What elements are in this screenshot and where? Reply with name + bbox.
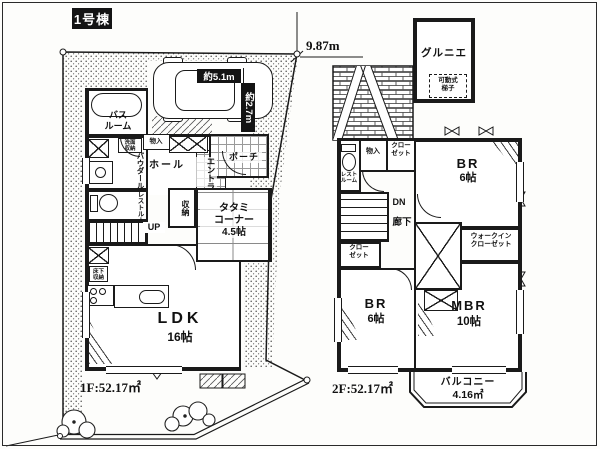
ladder-box: 可動式 梯子 — [429, 74, 467, 98]
ldk-label: LDK — [140, 310, 220, 329]
window — [82, 292, 90, 338]
restroom-1f-label: レストルーム — [126, 191, 144, 218]
small-x-box — [424, 290, 458, 311]
floor2-area-label: 2F:52.17㎡ — [332, 381, 442, 396]
stairs-down-label: DN — [388, 197, 410, 208]
washbasin — [88, 161, 113, 184]
storage-2f-label: 物入 — [360, 148, 386, 156]
bathroom-label: バス ルーム — [95, 110, 141, 131]
floor1-area-label: 1F:52.17㎡ — [80, 380, 190, 395]
tatami-label: タタミ コーナー 4.5帖 — [200, 203, 268, 238]
floorplan-page: 1号棟 9.87m 約5.1m 約2.7m バス ルーム 洗面 収納 パウダール… — [0, 0, 600, 449]
entrance-label: エントランス — [189, 157, 217, 187]
stairs-up-label: UP — [143, 222, 165, 233]
window — [348, 366, 398, 374]
ladder-label: 可動式 梯子 — [430, 77, 466, 92]
car-depth-dimension: 約2.7m — [241, 83, 255, 132]
kitchen-counter — [114, 285, 169, 308]
closet-mid-label: クロー ゼット — [339, 244, 379, 259]
bedroom-top-size: 6帖 — [438, 172, 498, 185]
stairs-1f — [85, 221, 148, 244]
washbasin-bowl — [95, 167, 106, 178]
hall-storage-label: 物入 — [144, 138, 168, 146]
master-bedroom-size: 10帖 — [439, 316, 499, 330]
powder-closet — [88, 139, 109, 158]
storage-1f-label: 収納 — [174, 194, 190, 222]
shoe-closet-cell — [188, 137, 206, 151]
void-x-box — [414, 222, 462, 290]
burner — [99, 288, 106, 295]
kitchen-sink — [139, 290, 165, 304]
site-width-dimension: 9.87m — [306, 38, 362, 53]
hall-storage-box: 物入 — [143, 134, 170, 150]
powder-room-label: パウダールーム — [127, 152, 145, 188]
bedroom-top-label: BR — [438, 156, 498, 171]
closet-top-label: クロー ゼット — [387, 142, 415, 157]
stairs-2f — [337, 192, 389, 242]
window — [106, 366, 182, 374]
hall-label: ホール — [146, 160, 188, 172]
walkin-closet-label: ウォークイン クローゼット — [461, 233, 521, 249]
window — [516, 290, 524, 334]
toilet-bowl-2f — [342, 153, 356, 171]
burner — [90, 288, 97, 295]
toilet-tank-1f — [90, 195, 98, 212]
balcony-door-window — [452, 366, 506, 374]
ldk-closet — [88, 247, 109, 264]
window — [334, 298, 342, 342]
building-title: 1号棟 — [74, 9, 110, 28]
window — [516, 162, 524, 202]
shoe-closet — [169, 136, 208, 153]
underfloor-storage-label: 床下 収納 — [90, 269, 107, 281]
building-title-badge: 1号棟 — [72, 8, 112, 29]
hallway-label: 廊下 — [389, 217, 415, 228]
bedroom-bottom-label: BR — [346, 296, 406, 311]
underfloor-storage-box: 床下 収納 — [89, 266, 108, 282]
kitchen-stove — [87, 285, 114, 306]
burner — [90, 297, 97, 304]
window — [82, 158, 90, 184]
grenier-label: グルニエ — [415, 47, 473, 59]
restroom-2f-label: レスト ルーム — [336, 172, 362, 185]
bedroom-bottom-size: 6帖 — [346, 313, 406, 326]
toilet-bowl-1f — [99, 194, 118, 212]
car-length-dimension: 約5.1m — [197, 69, 241, 83]
shoe-closet-cell — [170, 137, 188, 151]
toilet-tank-2f — [341, 144, 356, 152]
ldk-size-label: 16帖 — [140, 330, 220, 344]
